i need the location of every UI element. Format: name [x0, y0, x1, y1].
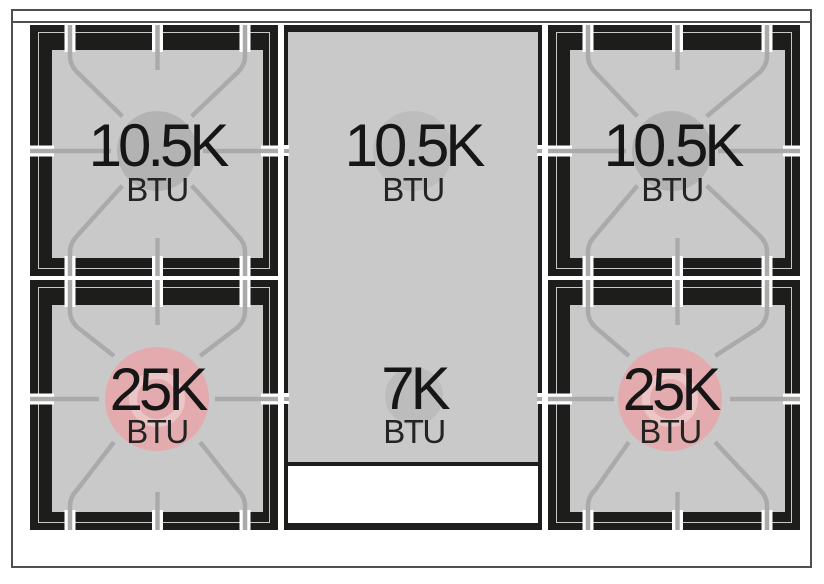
burner-module-front-right: 25K BTU	[548, 280, 800, 530]
burner-module-back-right: 10.5K BTU	[548, 25, 800, 276]
burner-btu-unit: BTU	[47, 173, 267, 207]
module-divider	[278, 25, 284, 530]
module-divider	[30, 276, 278, 280]
burner-btu-value: 10.5K	[562, 116, 782, 176]
burner-btu-value: 7K	[304, 359, 524, 419]
range-top-diagram: 10.5K BTU 10.5K BTU 25K BTU 25K	[0, 0, 824, 584]
burner-btu-unit: BTU	[560, 415, 780, 449]
burner-btu-value: 10.5K	[47, 116, 267, 176]
burner-module-front-left: 25K BTU	[30, 280, 278, 530]
module-divider	[548, 276, 800, 280]
grate-notch	[284, 145, 289, 156]
burner-btu-unit: BTU	[562, 173, 782, 207]
burner-btu-unit: BTU	[304, 415, 524, 449]
burner-btu-unit: BTU	[303, 173, 523, 207]
range-back-edge-line	[13, 21, 810, 23]
burner-btu-unit: BTU	[47, 415, 267, 449]
burner-btu-value: 25K	[560, 360, 780, 420]
burner-module-back-left: 10.5K BTU	[30, 25, 278, 276]
burner-btu-value: 10.5K	[303, 116, 523, 176]
grate-notch	[284, 393, 289, 404]
griddle-section: 10.5K BTU 7K BTU	[284, 25, 542, 530]
cooktop-surface: 10.5K BTU 10.5K BTU 25K BTU 25K	[30, 25, 800, 530]
griddle-drip-tray	[288, 466, 538, 523]
burner-btu-value: 25K	[47, 360, 267, 420]
